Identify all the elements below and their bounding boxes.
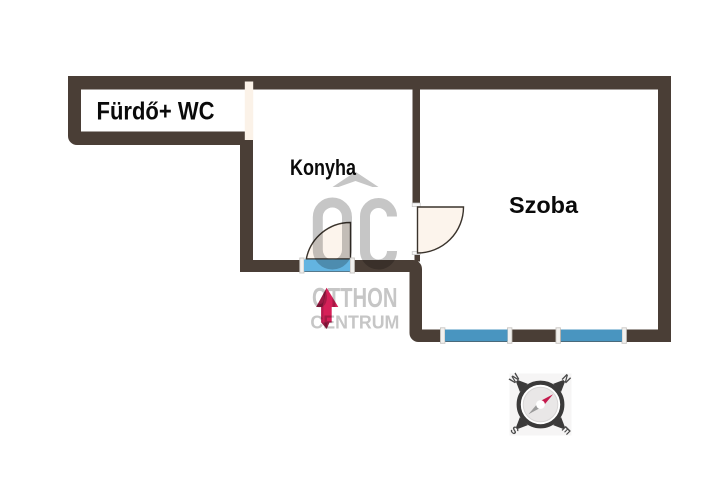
svg-text:OTTHON: OTTHON (312, 282, 398, 313)
svg-text:CENTRUM: CENTRUM (310, 311, 399, 332)
svg-text:Szoba: Szoba (509, 192, 579, 218)
svg-text:Konyha: Konyha (290, 155, 357, 180)
svg-text:Fürdő+ WC: Fürdő+ WC (97, 98, 215, 126)
